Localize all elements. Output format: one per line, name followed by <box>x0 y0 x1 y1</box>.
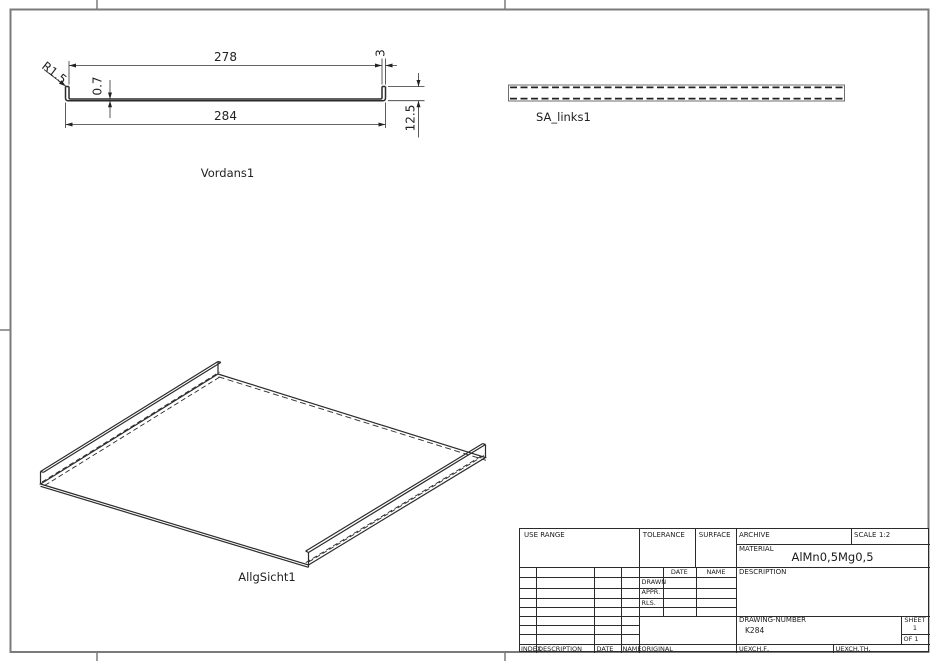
front-view-dim-lines <box>44 59 425 138</box>
footer-description-label: DESCRIPTION <box>538 646 582 653</box>
front-view-arrowheads <box>59 64 421 127</box>
titleblock-line <box>695 529 696 567</box>
sheet-value: 1 <box>901 625 929 632</box>
appr-label: APPR. <box>642 589 661 596</box>
dim-width-outer: 284 <box>214 109 237 123</box>
description-label: DESCRIPTION <box>739 569 786 577</box>
dim-flange-width: 3 <box>374 49 388 57</box>
date-column-header: DATE <box>663 569 696 576</box>
tolerance-label: TOLERANCE <box>643 532 685 540</box>
footer-name-label: NAME <box>623 646 642 653</box>
titleblock-line <box>833 644 834 653</box>
dim-width-inner: 278 <box>214 50 237 64</box>
titleblock-line <box>639 529 640 654</box>
iso-view-label: AllgSicht1 <box>238 570 296 584</box>
surface-label: SURFACE <box>699 532 731 540</box>
sheet-of-value: OF 1 <box>904 636 919 643</box>
name-column-header: NAME <box>696 569 736 576</box>
titleblock-line <box>520 588 736 589</box>
front-view: 278 3 284 0.7 12.5 R1.5 Vordans1 <box>39 49 424 180</box>
title-block: USE RANGE TOLERANCE SURFACE ARCHIVE SCAL… <box>519 528 929 653</box>
titleblock-line <box>520 634 639 635</box>
titleblock-line <box>736 529 737 654</box>
dim-thickness: 0.7 <box>91 76 105 95</box>
side-view-label: SA_links1 <box>536 110 591 124</box>
titleblock-line <box>520 598 736 599</box>
footer-uexch-f-label: UEXCH.F, <box>739 646 769 653</box>
rls-label: RLS. <box>642 600 656 607</box>
drawn-label: DRAWN <box>642 579 667 586</box>
drawing-number-value: K284 <box>745 627 764 635</box>
iso-view: AllgSicht1 <box>41 362 487 585</box>
drawing-number-label: DRAWING-NUMBER <box>739 617 806 625</box>
footer-original-label: ORIGINAL <box>642 646 673 653</box>
iso-view-solid-lines <box>41 362 486 568</box>
footer-date-label: DATE <box>597 646 614 653</box>
titleblock-line <box>536 567 537 654</box>
titleblock-line <box>520 616 930 617</box>
titleblock-line <box>621 567 622 654</box>
scale-value: 1:2 <box>879 532 890 540</box>
titleblock-line <box>594 567 595 654</box>
iso-view-dashed-lines <box>42 372 486 564</box>
drawing-sheet: 278 3 284 0.7 12.5 R1.5 Vordans1 SA_link… <box>0 0 940 661</box>
dim-radius: R1.5 <box>39 59 69 87</box>
material-value: AlMn0,5Mg0,5 <box>736 550 929 564</box>
side-view: SA_links1 <box>509 85 845 124</box>
titleblock-line <box>520 607 736 608</box>
footer-uexch-th-label: UEXCH.TH, <box>836 646 871 653</box>
front-view-profile <box>66 87 386 101</box>
archive-label: ARCHIVE <box>739 532 770 540</box>
titleblock-line <box>520 625 639 626</box>
titleblock-line <box>851 529 852 544</box>
titleblock-line <box>520 577 736 578</box>
scale-label: SCALE <box>854 532 876 540</box>
dim-height: 12.5 <box>404 105 418 132</box>
use-range-label: USE RANGE <box>524 532 565 540</box>
front-view-label: Vordans1 <box>201 166 254 180</box>
